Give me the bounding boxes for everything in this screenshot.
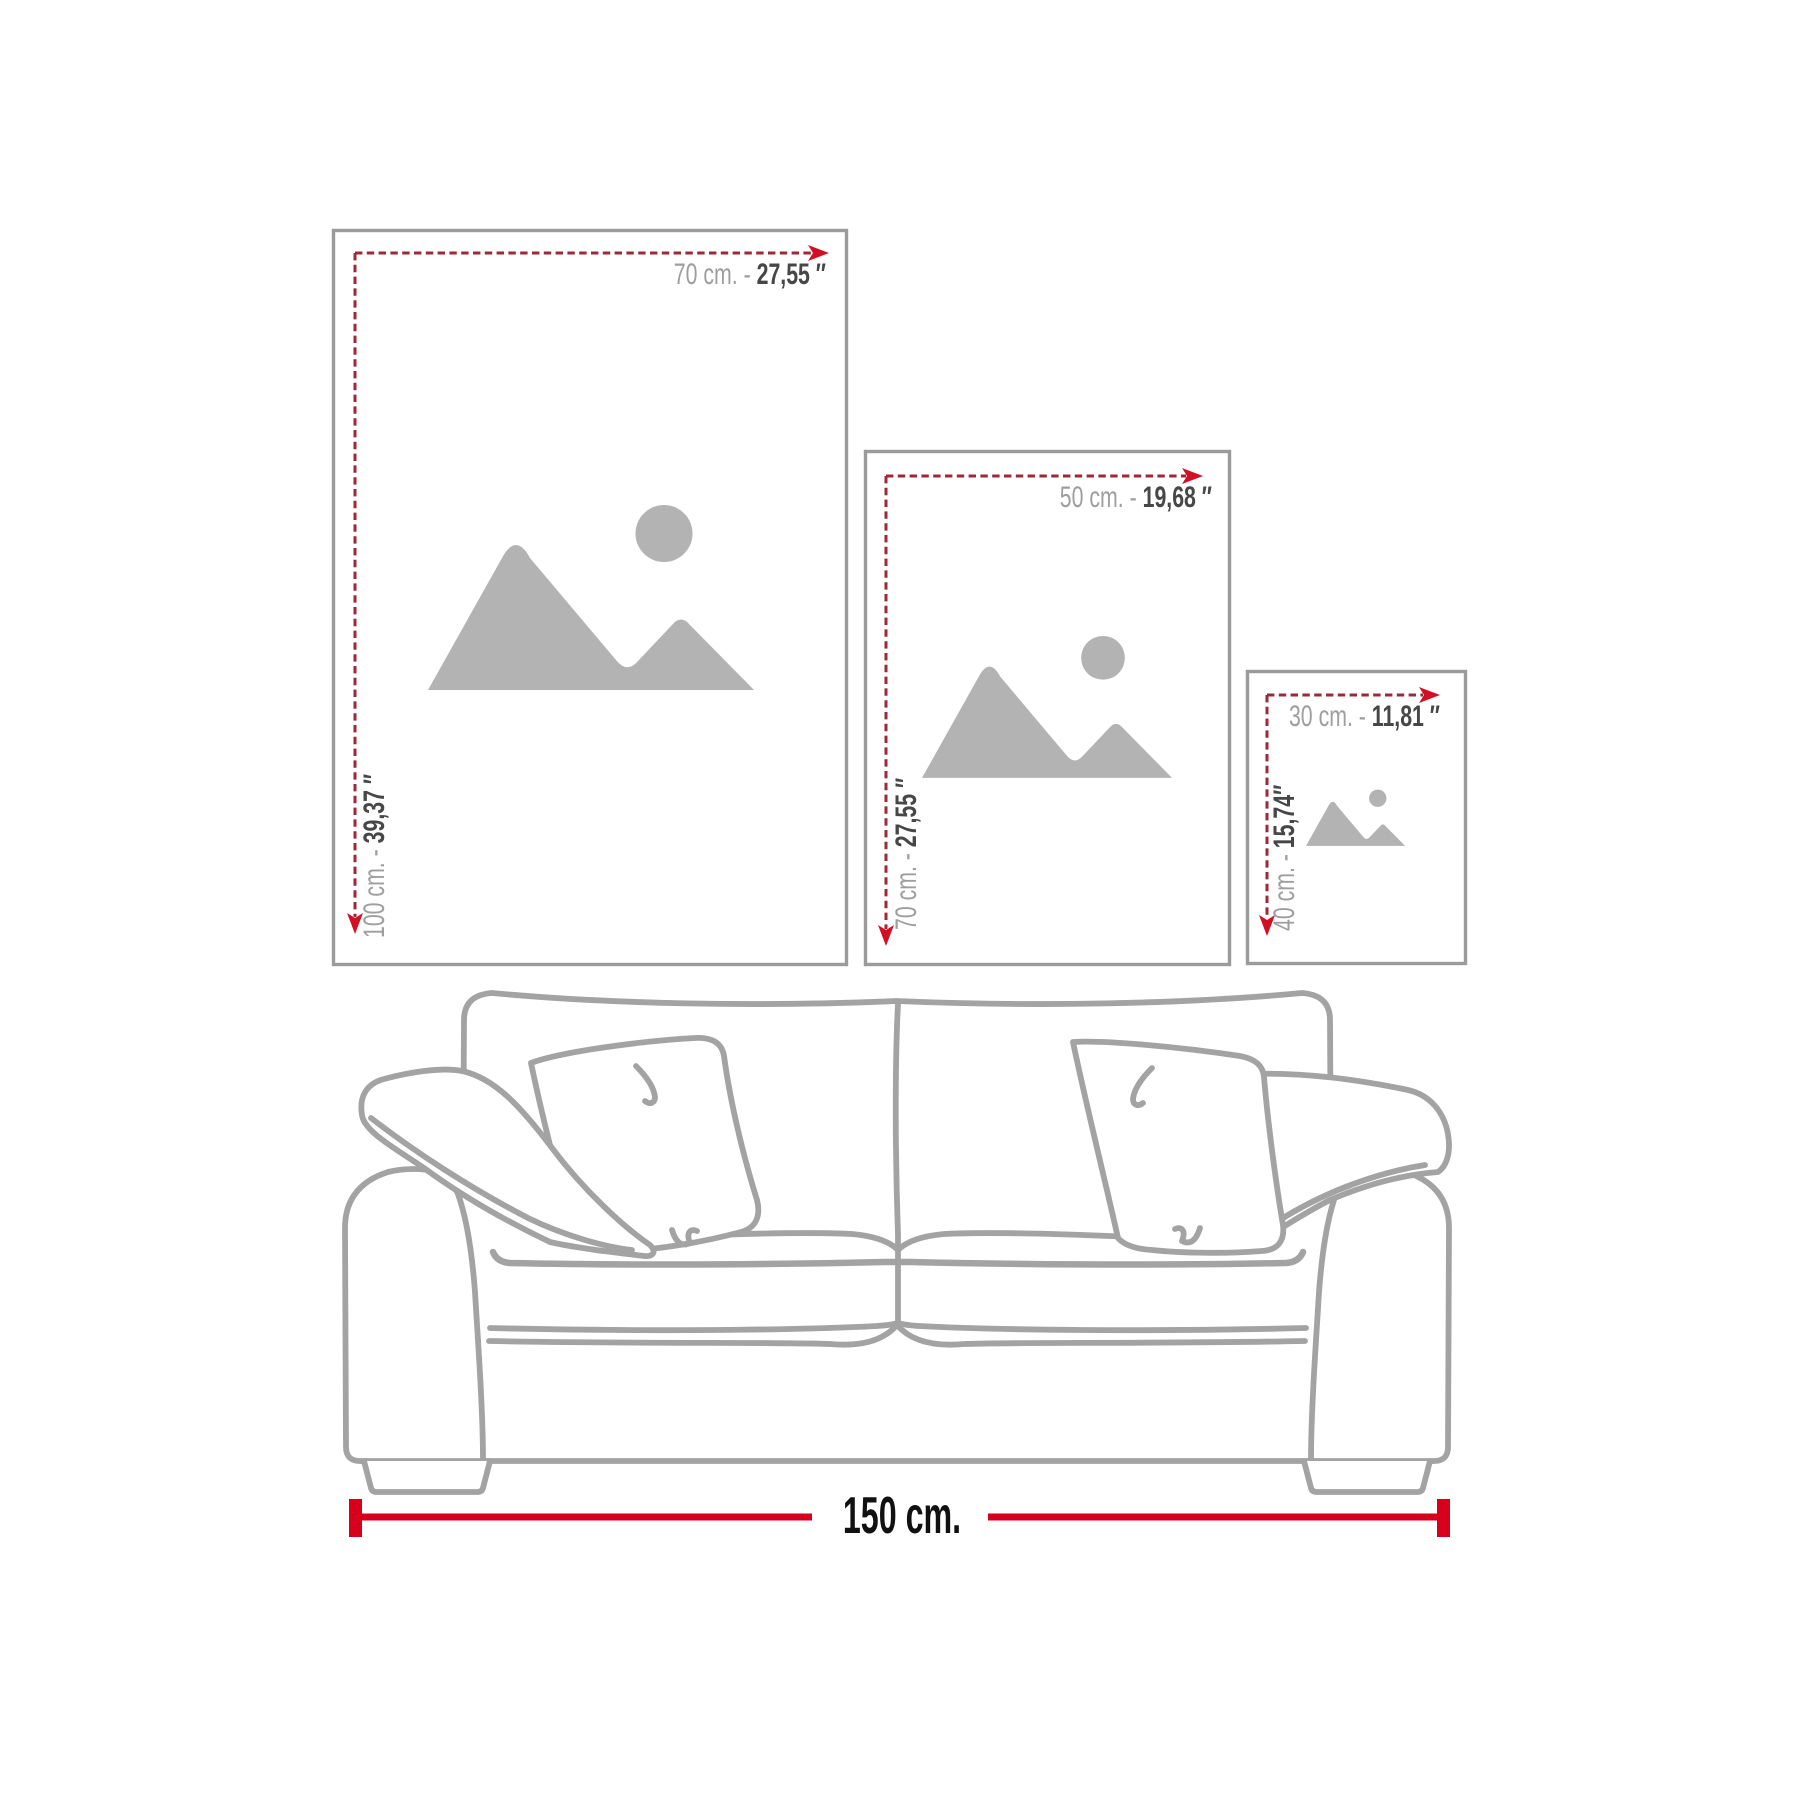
svg-text:30 cm. - 11,81 ″: 30 cm. - 11,81 ″ (1289, 698, 1440, 733)
svg-text:150 cm.: 150 cm. (843, 1487, 961, 1545)
svg-text:50 cm. - 19,68 ″: 50 cm. - 19,68 ″ (1060, 479, 1212, 514)
svg-text:100 cm. - 39,37 ″: 100 cm. - 39,37 ″ (356, 774, 391, 938)
svg-text:70 cm. - 27,55 ″: 70 cm. - 27,55 ″ (888, 778, 923, 930)
svg-text:70 cm. - 27,55 ″: 70 cm. - 27,55 ″ (674, 256, 826, 291)
svg-text:40 cm. - 15,74″: 40 cm. - 15,74″ (1266, 785, 1301, 931)
